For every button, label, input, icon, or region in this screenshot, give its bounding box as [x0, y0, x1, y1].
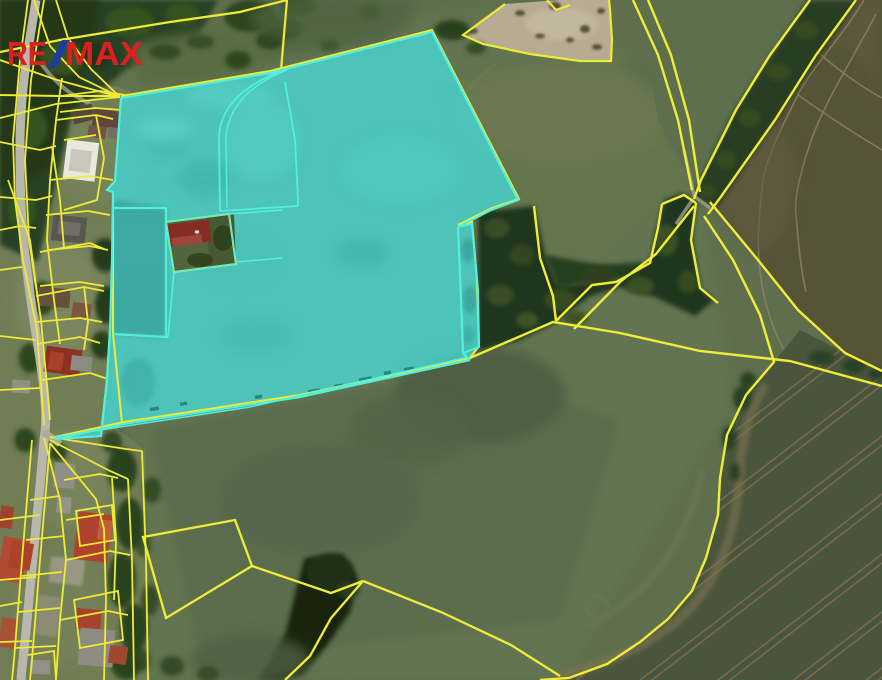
svg-text:RE: RE: [7, 35, 47, 72]
svg-text:MAX: MAX: [65, 35, 143, 72]
